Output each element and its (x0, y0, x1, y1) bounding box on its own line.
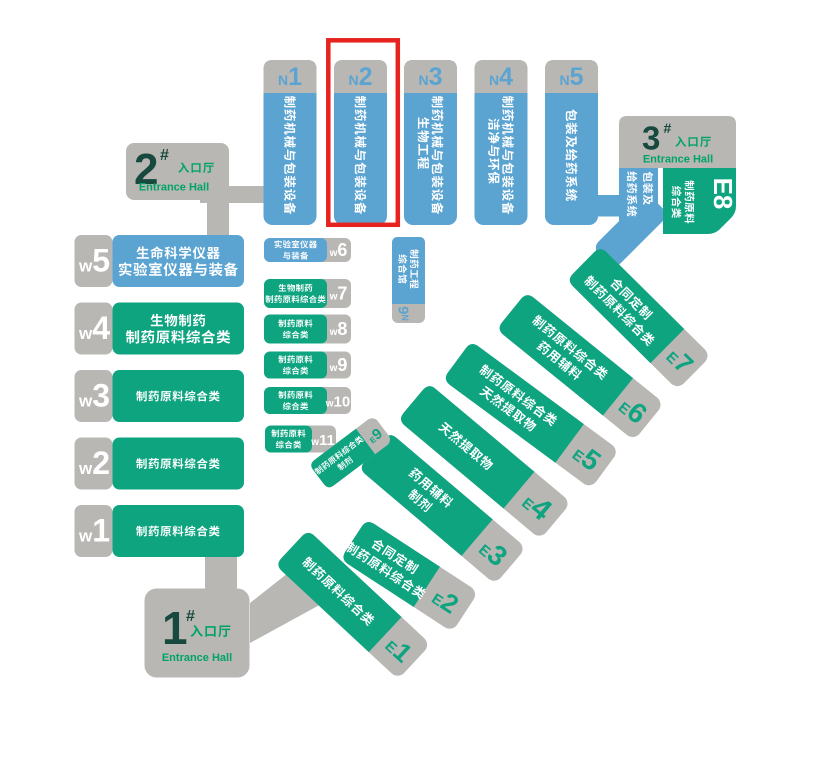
svg-text:Entrance Hall: Entrance Hall (643, 154, 713, 166)
svg-text:#: # (664, 120, 672, 136)
svg-text:3: 3 (642, 119, 660, 156)
svg-text:#: # (186, 608, 195, 625)
svg-text:Entrance Hall: Entrance Hall (162, 652, 232, 664)
svg-text:E8: E8 (708, 178, 738, 210)
svg-text:1: 1 (162, 602, 188, 654)
svg-text:#: # (160, 147, 169, 164)
svg-text:Entrance Hall: Entrance Hall (139, 182, 209, 194)
